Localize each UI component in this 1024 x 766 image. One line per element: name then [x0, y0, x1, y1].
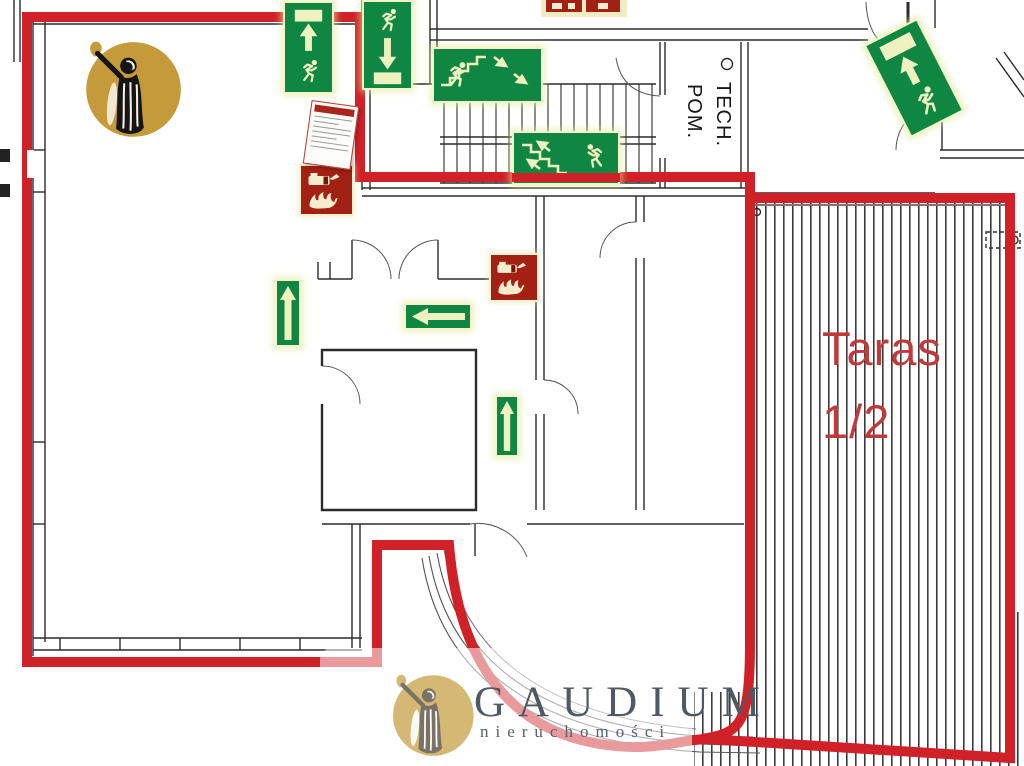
- running-man-icon: [383, 9, 396, 30]
- fire-extinguisher-icon: [309, 173, 340, 185]
- sheet-header: [314, 104, 355, 116]
- tech-room-label-line1: POM.: [682, 84, 705, 139]
- angel-figure-icon: [393, 675, 474, 756]
- stairs-down-sign: [434, 49, 541, 101]
- partial-red-sign-icon: [586, 0, 620, 12]
- fire-extinguisher-icon: [497, 262, 526, 273]
- direction-left-sign: [406, 305, 470, 328]
- up-arrow-icon: [500, 401, 514, 451]
- exit-door-icon: [374, 72, 401, 84]
- exit-door-icon: [879, 32, 916, 61]
- running-man-icon: [304, 60, 317, 81]
- gaudium-logo-mark-bottom: [386, 670, 478, 762]
- running-man-icon: [916, 85, 941, 114]
- partial-red-sign-icon: [546, 0, 582, 12]
- boundary-gap: [27, 150, 34, 178]
- down-right-arrows-icon: [494, 57, 526, 83]
- exit-route-up-sign: [285, 3, 332, 92]
- floor-plan-image: Taras 1/2 POM. TECH.: [0, 0, 1024, 766]
- brand-name: GAUDIUM: [474, 678, 773, 727]
- down-arrow-icon: [379, 38, 397, 69]
- fire-extinguisher-sign-2: [491, 255, 537, 300]
- exit-door-icon: [295, 10, 322, 22]
- angel-figure-icon: [86, 42, 181, 137]
- flames-icon: [498, 279, 524, 294]
- direction-up-sign-1: [277, 281, 299, 345]
- up-arrow-icon: [894, 52, 925, 88]
- brand-subtitle: nieruchomości: [480, 722, 671, 742]
- gaudium-logo-mark-top: [78, 36, 186, 144]
- terrace-label-line1: Taras: [822, 312, 942, 385]
- up-arrow-icon: [280, 286, 296, 340]
- fire-extinguisher-sign-1: [301, 166, 352, 214]
- left-arrow-icon: [412, 308, 465, 325]
- tech-room-label-line2: TECH.: [711, 82, 734, 147]
- terrace-label-line2: 1/2: [822, 385, 942, 458]
- stairs-icon: [441, 57, 486, 85]
- partial-fire-signs-top: [541, 0, 627, 17]
- running-man-icon: [588, 144, 602, 167]
- up-arrow-icon: [300, 24, 318, 51]
- flames-icon: [310, 192, 338, 209]
- direction-up-sign-2: [497, 397, 517, 455]
- boundary-line-over-sign: [512, 173, 620, 182]
- exit-route-down-sign: [364, 2, 411, 88]
- terrace-label: Taras 1/2: [822, 312, 942, 458]
- fire-instruction-sheet: [303, 100, 359, 170]
